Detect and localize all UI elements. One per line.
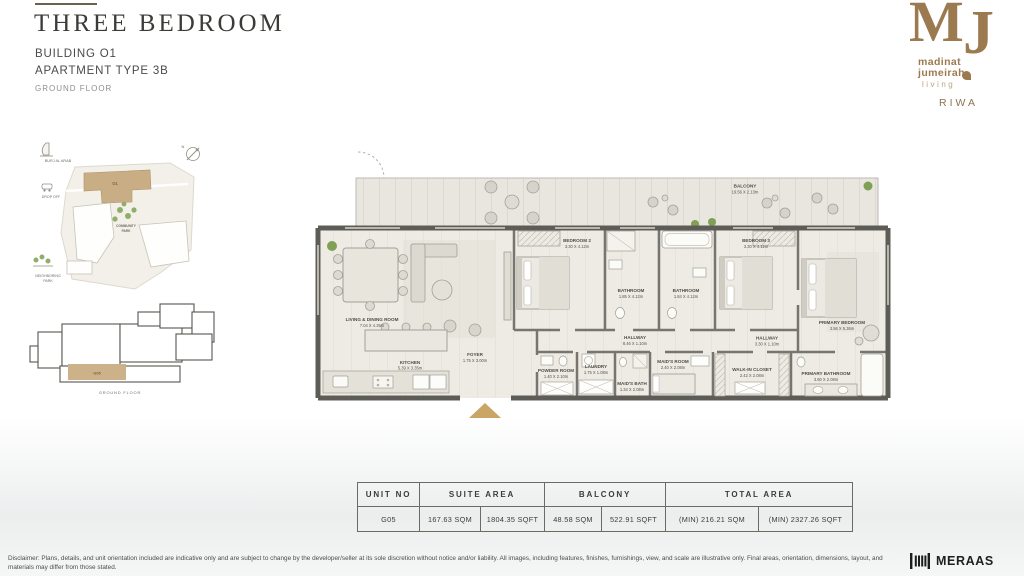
cell-balcony-sqft: 522.91 SQFT (602, 507, 666, 532)
svg-text:5.39 X 3.35m: 5.39 X 3.35m (398, 366, 423, 371)
project-name: RIWA (939, 97, 978, 109)
svg-text:FOYER: FOYER (467, 352, 484, 357)
cell-suite-sqft: 1804.35 SQFT (481, 507, 545, 532)
svg-text:1.40 X 2.10m: 1.40 X 2.10m (544, 374, 569, 379)
area-table-header-row: UNIT NO SUITE AREA BALCONY TOTAL AREA (358, 483, 853, 507)
room-label-hallway-2: HALLWAY 3.30 X 1.10m (755, 336, 780, 347)
svg-text:1.34 X 2.08m: 1.34 X 2.08m (620, 387, 645, 392)
svg-text:1.85 X 4.12m: 1.85 X 4.12m (619, 294, 644, 299)
plant-icon (327, 241, 337, 251)
svg-text:1.84 X 4.12m: 1.84 X 4.12m (674, 294, 699, 299)
svg-text:PRIMARY BEDROOM: PRIMARY BEDROOM (819, 320, 865, 325)
svg-text:3.30 X 1.10m: 3.30 X 1.10m (755, 342, 780, 347)
monogram-m: M (909, 0, 964, 55)
svg-text:1.75 X 3.00m: 1.75 X 3.00m (463, 358, 488, 363)
unit-tag: G05 (93, 371, 101, 376)
svg-text:BATHROOM: BATHROOM (618, 288, 645, 293)
burj-al-arab-icon (40, 143, 53, 156)
brand-name-line2: jumeirah (918, 67, 965, 79)
room-label-bedroom-3: BEDROOM 3 3.30 X 4.12m (742, 238, 770, 249)
svg-text:LIVING & DINING ROOM: LIVING & DINING ROOM (346, 317, 399, 322)
floor-plan: BALCONY 19.56 X 2.13m LIVING & DINING RO… (315, 140, 895, 430)
svg-text:2.40 X 2.08m: 2.40 X 2.08m (661, 365, 686, 370)
neighboring-park-label-2: PARK (43, 279, 53, 283)
monogram-j: J (963, 0, 994, 69)
drop-off-label: DROP OFF (42, 195, 61, 199)
svg-text:MAID'S ROOM: MAID'S ROOM (657, 359, 689, 364)
cell-total-sqft: (MIN) 2327.26 SQFT (759, 507, 853, 532)
community-park-label-1: COMMUNITY (116, 224, 137, 228)
brand-logo: M J madinat jumeirah living RIWA (905, 0, 1020, 118)
header-total-area: TOTAL AREA (666, 483, 853, 507)
disclaimer-text: Disclaimer: Plans, details, and unit ori… (8, 554, 900, 573)
cell-total-sqm: (MIN) 216.21 SQM (666, 507, 759, 532)
area-table: UNIT NO SUITE AREA BALCONY TOTAL AREA G0… (357, 482, 853, 532)
room-label-laundry: LAUNDRY 1.75 X 1.08m (584, 364, 609, 375)
room-label-maids-room: MAID'S ROOM 2.40 X 2.08m (657, 359, 689, 370)
svg-text:BATHROOM: BATHROOM (673, 288, 700, 293)
neighboring-park-label-1: NEIGHBORING (35, 274, 61, 278)
svg-text:POWDER ROOM: POWDER ROOM (538, 368, 574, 373)
floor-label: GROUND FLOOR (35, 84, 112, 93)
burj-al-arab-label: BURJ AL ARAB (45, 159, 72, 163)
room-label-bedroom-2: BEDROOM 2 3.30 X 4.12m (563, 238, 591, 249)
room-label-maids-bath: MAID'S BATH 1.34 X 2.08m (617, 381, 647, 392)
room-label-hallway-1: HALLWAY 8.46 X 1.10m (623, 335, 648, 346)
room-label-bathroom-1: BATHROOM 1.85 X 4.12m (618, 288, 645, 299)
svg-text:3.30 X 4.12m: 3.30 X 4.12m (744, 244, 769, 249)
balcony-deck (356, 178, 878, 228)
neighboring-park-trees (33, 255, 53, 267)
neighbor-building-small (67, 261, 92, 274)
building-label: BUILDING O1 (35, 48, 117, 60)
svg-text:PRIMARY BATHROOM: PRIMARY BATHROOM (802, 371, 851, 376)
cell-balcony-sqm: 48.58 SQM (545, 507, 602, 532)
compass-icon (187, 148, 200, 161)
meraas-logo: MERAAS (910, 553, 994, 569)
room-label-kitchen: KITCHEN 5.39 X 3.35m (398, 360, 423, 371)
title-rule (35, 3, 97, 5)
brand-name-line3: living (922, 80, 955, 89)
site-map: BURJ AL ARAB N O1 COMMUNITY PARK DROP OF… (20, 140, 235, 400)
brochure-page: THREE BEDROOM BUILDING O1 APARTMENT TYPE… (0, 0, 1024, 576)
keyplan-caption: GROUND FLOOR (99, 390, 141, 395)
svg-text:LAUNDRY: LAUNDRY (585, 364, 607, 369)
svg-text:MAID'S BATH: MAID'S BATH (617, 381, 647, 386)
drop-off-icon (42, 184, 52, 192)
cell-unit-no: G05 (358, 507, 420, 532)
svg-text:KITCHEN: KITCHEN (400, 360, 421, 365)
svg-text:2.42 X 2.08m: 2.42 X 2.08m (740, 373, 765, 378)
apartment-type-label: APARTMENT TYPE 3B (35, 65, 169, 77)
page-title: THREE BEDROOM (34, 10, 285, 38)
svg-text:BALCONY: BALCONY (734, 184, 757, 189)
svg-text:3.30 X 4.12m: 3.30 X 4.12m (565, 244, 590, 249)
svg-text:BEDROOM 3: BEDROOM 3 (742, 238, 770, 243)
room-label-bathroom-2: BATHROOM 1.84 X 4.12m (673, 288, 700, 299)
svg-text:HALLWAY: HALLWAY (756, 336, 778, 341)
header-unit-no: UNIT NO (358, 483, 420, 507)
cell-suite-sqm: 167.63 SQM (420, 507, 481, 532)
building-tag: O1 (112, 181, 118, 186)
door-swing-arc (358, 152, 384, 178)
compass-n-label: N (182, 144, 185, 149)
svg-text:3.56 X 5.36m: 3.56 X 5.36m (830, 326, 855, 331)
svg-text:1.75 X 1.08m: 1.75 X 1.08m (584, 370, 609, 375)
header-balcony: BALCONY (545, 483, 666, 507)
svg-text:WALK-IN CLOSET: WALK-IN CLOSET (732, 367, 772, 372)
meraas-bars-icon (910, 553, 930, 569)
entrance-arrow-icon (469, 403, 501, 418)
svg-text:8.46 X 1.10m: 8.46 X 1.10m (623, 341, 648, 346)
svg-text:19.56 X 2.13m: 19.56 X 2.13m (732, 190, 759, 195)
svg-text:BEDROOM 2: BEDROOM 2 (563, 238, 591, 243)
svg-text:7.04 X 4.35m: 7.04 X 4.35m (360, 323, 385, 328)
svg-text:3.60 X 2.08m: 3.60 X 2.08m (814, 377, 839, 382)
community-park-label-2: PARK (122, 229, 131, 233)
room-label-balcony: BALCONY 19.56 X 2.13m (732, 184, 759, 195)
meraas-wordmark: MERAAS (936, 554, 994, 568)
svg-text:HALLWAY: HALLWAY (624, 335, 646, 340)
area-table-data-row: G05 167.63 SQM 1804.35 SQFT 48.58 SQM 52… (358, 507, 853, 532)
header-suite-area: SUITE AREA (420, 483, 545, 507)
